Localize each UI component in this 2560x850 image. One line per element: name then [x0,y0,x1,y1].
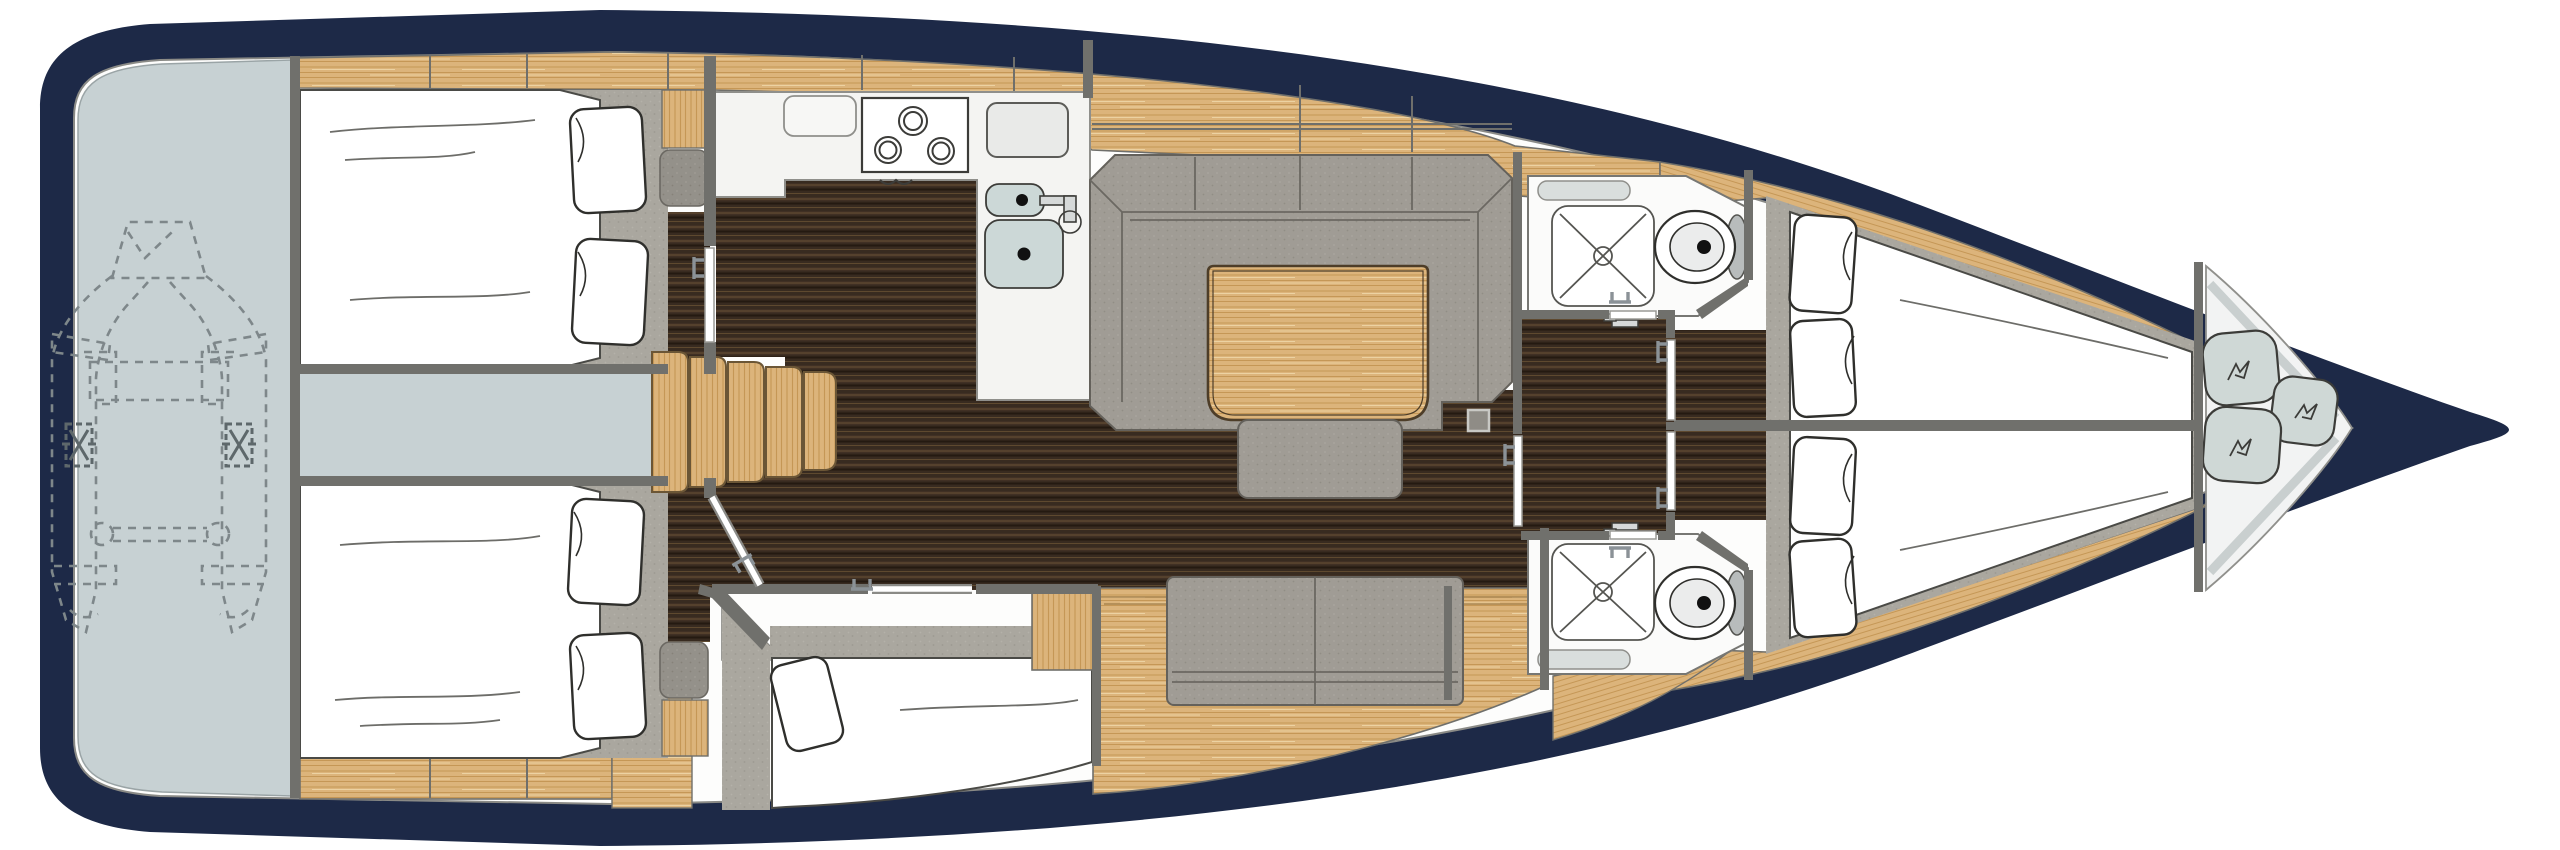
galley-floor-left [716,197,785,357]
shower [1552,206,1654,306]
galley-floor [785,178,977,402]
cabin-seat [660,642,708,698]
aft-stbd-locker-band [300,755,612,799]
wardrobe-wood [662,90,708,148]
dining-table [1208,266,1428,420]
stove [862,98,968,184]
wardrobe-wood [662,700,708,756]
bed [300,90,600,368]
companionway-stairs [652,352,836,492]
vanity-sink [1538,181,1630,200]
bed [300,482,600,758]
fridge [987,103,1068,157]
table-bench [1238,420,1402,498]
yacht-floor-plan [0,0,2560,850]
toilet [1655,567,1748,639]
sink-small [986,184,1044,216]
platform-deck [78,60,292,796]
aft-cabin-starboard [300,482,708,758]
swim-platform [52,60,292,796]
forepeak [2201,266,2352,590]
cabin-seat [660,150,708,206]
floor-plan-svg [0,0,2560,850]
aft-cabin-port [300,90,708,368]
shower [1552,544,1654,640]
nightstand-wood [1032,590,1094,670]
mast-post [1468,410,1489,431]
galley-shelf [784,96,856,136]
toilet [1655,211,1748,283]
vanity-sink [1538,650,1630,669]
sofa [1167,577,1463,705]
engine-compartment [300,362,678,490]
